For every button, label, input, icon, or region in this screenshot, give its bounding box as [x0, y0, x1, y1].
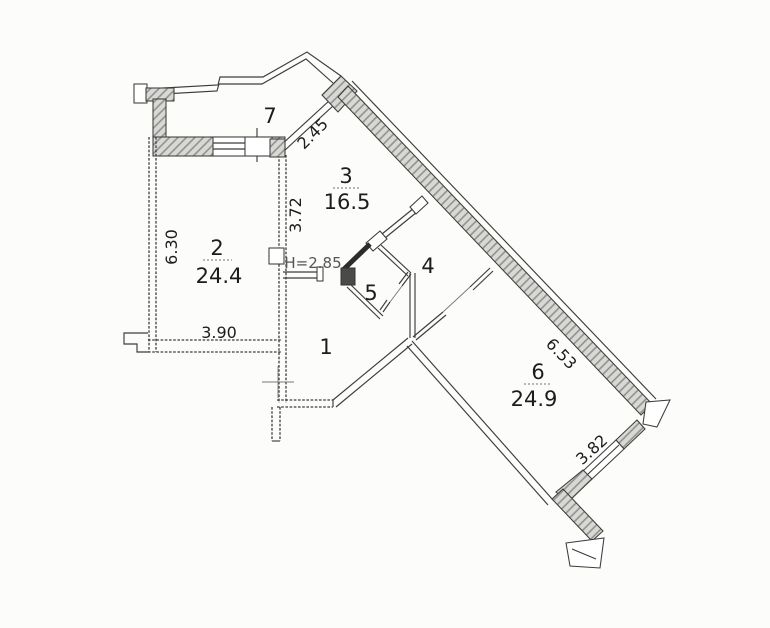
room3-room4-wall [366, 196, 428, 251]
diagonal-wall-outer-line [352, 81, 656, 399]
room4-room6-wall-a [470, 268, 490, 287]
hall-south-diagonal-inner [333, 338, 408, 400]
dim-room2-width: 3.90 [201, 323, 237, 342]
room1-number: 1 [319, 335, 332, 359]
room5-nw-wall-thick [343, 244, 370, 270]
hall-south-diagonal-outer [336, 344, 412, 407]
room2-number: 2 [210, 236, 223, 260]
room2-balcony-window [213, 137, 245, 156]
room6-east-notch [643, 400, 670, 427]
dim-room3-window: 2.45 [293, 114, 332, 153]
room5-se-wall-upper2 [399, 272, 408, 284]
room4-room6-wall-b2 [416, 315, 446, 340]
room2-bottom-left-notch [124, 333, 148, 352]
wall-3-4-inner [385, 212, 417, 238]
balcony-corner-wall-vertical [153, 99, 166, 139]
room2-area: 24.4 [196, 264, 243, 288]
room3-area: 16.5 [324, 190, 371, 214]
room5-west-corner-block [341, 268, 355, 285]
room5-door-threshold [390, 286, 402, 302]
room5-ne-wall-inner [378, 248, 408, 276]
room2-balcony-door-opening [245, 137, 272, 156]
room4-number: 4 [421, 254, 434, 278]
room2-top-wall [153, 137, 285, 156]
dim-wall-2-3: 3.72 [286, 197, 305, 233]
floor-plan-drawing: 7 2 24.4 3 16.5 4 5 1 6 24.9 6.30 3.90 3… [0, 0, 770, 628]
labels: 7 2 24.4 3 16.5 4 5 1 6 24.9 6.30 3.90 3… [162, 104, 611, 469]
room6-number: 6 [531, 360, 544, 384]
door-jamb-upper [410, 196, 428, 214]
room2-wall-pilaster [269, 248, 284, 264]
dim-room2-height: 6.30 [162, 229, 181, 265]
room3-number: 3 [339, 164, 352, 188]
room-4 [410, 268, 493, 340]
room4-room6-wall-b [413, 312, 443, 337]
room4-room6-door-threshold [443, 287, 470, 312]
room6-south-foot [566, 538, 604, 568]
room7-number: 7 [263, 104, 276, 128]
wall-3-4-outer [382, 208, 414, 234]
room6-area: 24.9 [511, 387, 558, 411]
balcony-left-pier [134, 84, 147, 103]
room-1-hallway [262, 267, 412, 441]
room6-sw-wall-inner [407, 346, 548, 505]
room5-ne-wall-outer [381, 245, 411, 273]
room4-room6-wall-a2 [473, 271, 493, 290]
room3-window-pier [270, 139, 285, 157]
floor-plan-page: 7 2 24.4 3 16.5 4 5 1 6 24.9 6.30 3.90 3… [0, 0, 770, 628]
room5-number: 5 [364, 281, 377, 305]
ceiling-height-label: H=2.85 [284, 254, 341, 272]
room6-corner-wall-b [552, 489, 603, 541]
